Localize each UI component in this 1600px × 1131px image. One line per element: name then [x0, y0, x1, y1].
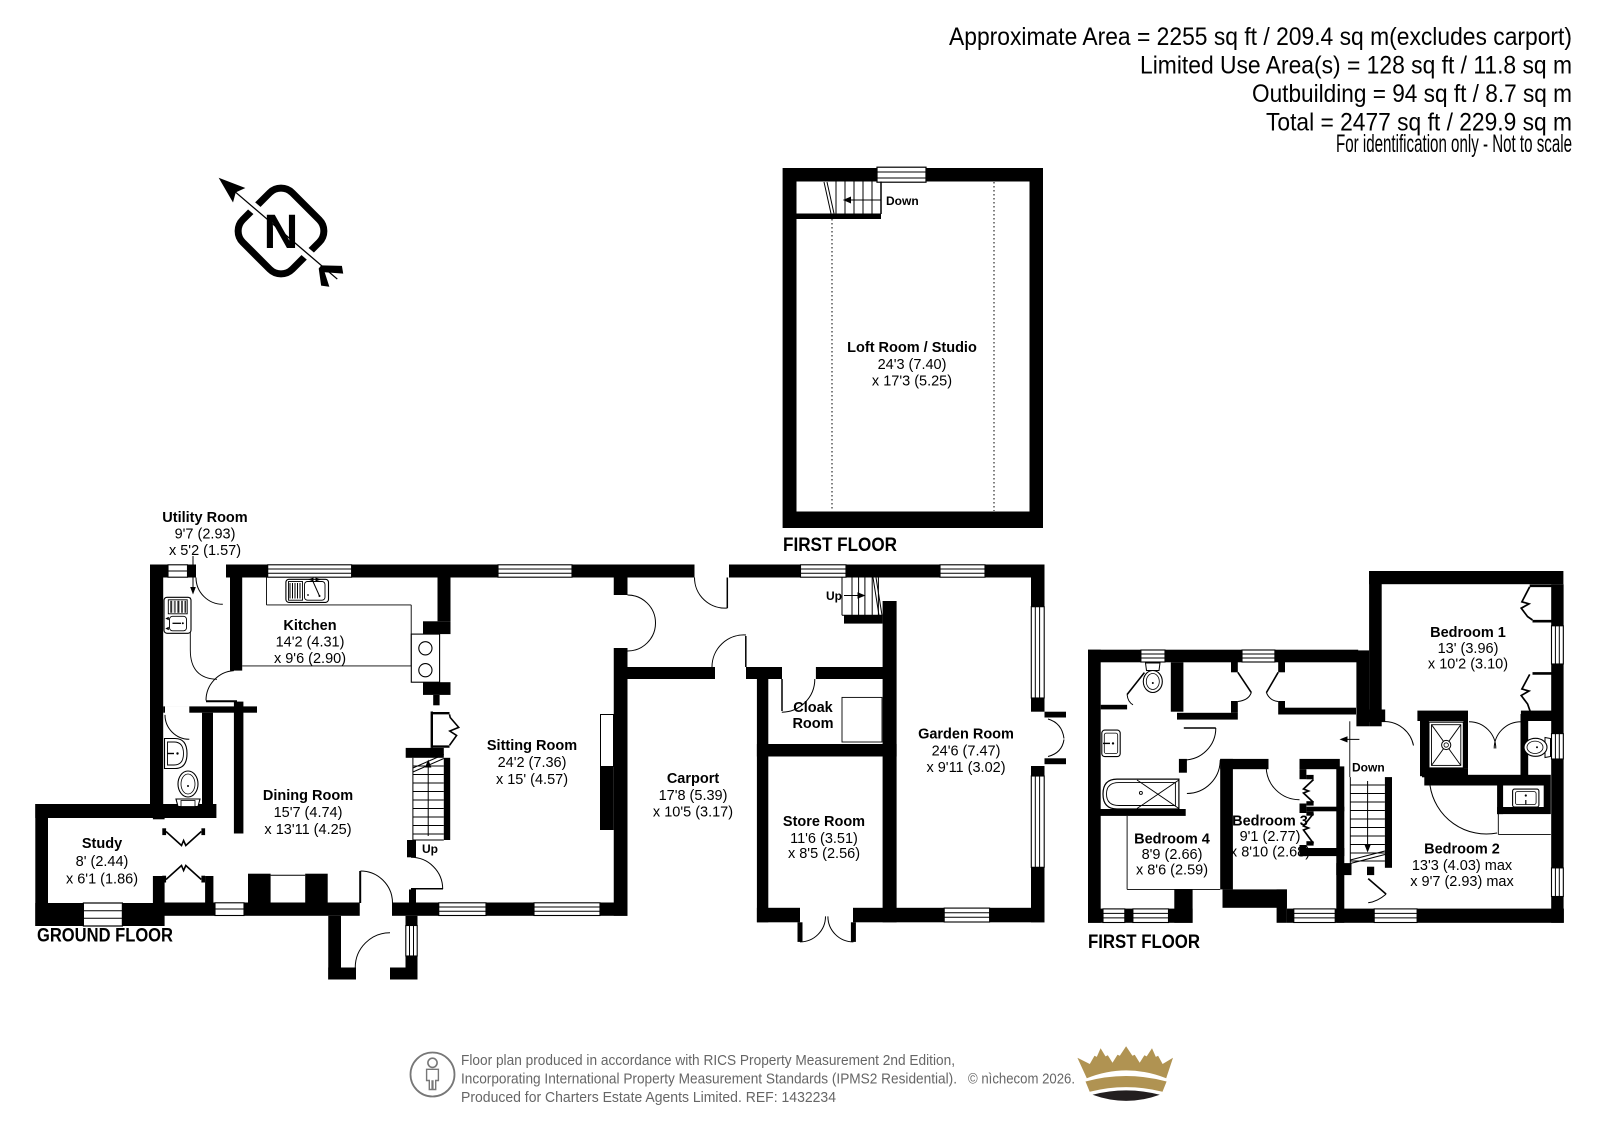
svg-text:Room: Room [792, 716, 833, 732]
svg-text:x 9'11 (3.02): x 9'11 (3.02) [926, 760, 1005, 776]
svg-text:24'3 (7.40): 24'3 (7.40) [878, 357, 947, 373]
svg-text:x 8'5 (2.56): x 8'5 (2.56) [788, 846, 860, 862]
svg-text:FIRST FLOOR: FIRST FLOOR [783, 534, 897, 556]
svg-text:FIRST FLOOR: FIRST FLOOR [1088, 931, 1200, 953]
svg-text:x 13'11 (4.25): x 13'11 (4.25) [264, 822, 351, 838]
svg-text:Approximate Area = 2255 sq ft: Approximate Area = 2255 sq ft / 209.4 sq… [949, 23, 1572, 51]
svg-text:x 6'1 (1.86): x 6'1 (1.86) [66, 872, 138, 888]
svg-text:Bedroom 3: Bedroom 3 [1232, 814, 1308, 830]
svg-text:Garden Room: Garden Room [918, 727, 1014, 743]
svg-text:17'8 (5.39): 17'8 (5.39) [659, 788, 728, 804]
svg-text:11'6 (3.51): 11'6 (3.51) [790, 831, 858, 847]
svg-text:For identification only - Not: For identification only - Not to scale [1336, 130, 1572, 158]
svg-text:Down: Down [1352, 761, 1385, 775]
svg-text:x 9'6 (2.90): x 9'6 (2.90) [274, 651, 346, 667]
svg-text:Cloak: Cloak [793, 700, 833, 716]
svg-text:x 10'5 (3.17): x 10'5 (3.17) [653, 805, 733, 821]
svg-text:Sitting Room: Sitting Room [487, 738, 577, 754]
svg-text:© nìchecom 2026.: © nìchecom 2026. [968, 1072, 1075, 1088]
svg-text:24'2 (7.36): 24'2 (7.36) [498, 755, 567, 771]
svg-text:Bedroom 2: Bedroom 2 [1424, 842, 1500, 858]
svg-text:Bedroom 4: Bedroom 4 [1134, 832, 1210, 848]
svg-text:Loft Room / Studio: Loft Room / Studio [847, 340, 977, 356]
svg-text:Kitchen: Kitchen [283, 618, 336, 634]
svg-text:x 15' (4.57): x 15' (4.57) [496, 772, 568, 788]
svg-text:x 5'2 (1.57): x 5'2 (1.57) [169, 543, 241, 559]
svg-text:8'9 (2.66): 8'9 (2.66) [1142, 847, 1203, 863]
svg-text:Outbuilding = 94 sq ft / 8.7 s: Outbuilding = 94 sq ft / 8.7 sq m [1252, 80, 1572, 108]
svg-text:13' (3.96): 13' (3.96) [1438, 641, 1499, 657]
svg-text:13'3 (4.03) max: 13'3 (4.03) max [1412, 858, 1513, 874]
svg-text:Carport: Carport [667, 771, 720, 787]
svg-text:Up: Up [826, 589, 842, 603]
svg-text:Study: Study [82, 836, 122, 852]
svg-text:Utility Room: Utility Room [162, 510, 247, 526]
svg-text:x 9'7 (2.93) max: x 9'7 (2.93) max [1410, 874, 1514, 890]
svg-text:15'7 (4.74): 15'7 (4.74) [274, 805, 343, 821]
svg-text:x 10'2 (3.10): x 10'2 (3.10) [1428, 657, 1508, 673]
svg-text:Dining Room: Dining Room [263, 788, 353, 804]
svg-text:x 17'3 (5.25): x 17'3 (5.25) [872, 374, 952, 390]
svg-text:14'2 (4.31): 14'2 (4.31) [276, 635, 345, 651]
svg-text:GROUND FLOOR: GROUND FLOOR [37, 925, 173, 947]
svg-text:Produced for Charters Estate A: Produced for Charters Estate Agents Limi… [461, 1090, 836, 1106]
svg-text:24'6 (7.47): 24'6 (7.47) [932, 744, 1001, 760]
svg-text:N: N [264, 206, 299, 259]
svg-text:Down: Down [886, 194, 919, 208]
svg-text:8' (2.44): 8' (2.44) [76, 854, 129, 870]
svg-text:Floor plan produced in accorda: Floor plan produced in accordance with R… [461, 1053, 955, 1069]
svg-text:9'7 (2.93): 9'7 (2.93) [175, 527, 236, 543]
svg-text:Bedroom 1: Bedroom 1 [1430, 625, 1506, 641]
svg-text:Limited Use Area(s) = 128 sq f: Limited Use Area(s) = 128 sq ft / 11.8 s… [1140, 52, 1572, 80]
svg-text:Store Room: Store Room [783, 814, 865, 830]
svg-text:x 8'6 (2.59): x 8'6 (2.59) [1136, 863, 1208, 879]
svg-text:Up: Up [422, 842, 438, 856]
svg-text:Incorporating International Pr: Incorporating International Property Mea… [461, 1072, 957, 1088]
svg-text:9'1 (2.77): 9'1 (2.77) [1240, 829, 1301, 845]
svg-text:x 8'10 (2.68): x 8'10 (2.68) [1230, 845, 1310, 861]
